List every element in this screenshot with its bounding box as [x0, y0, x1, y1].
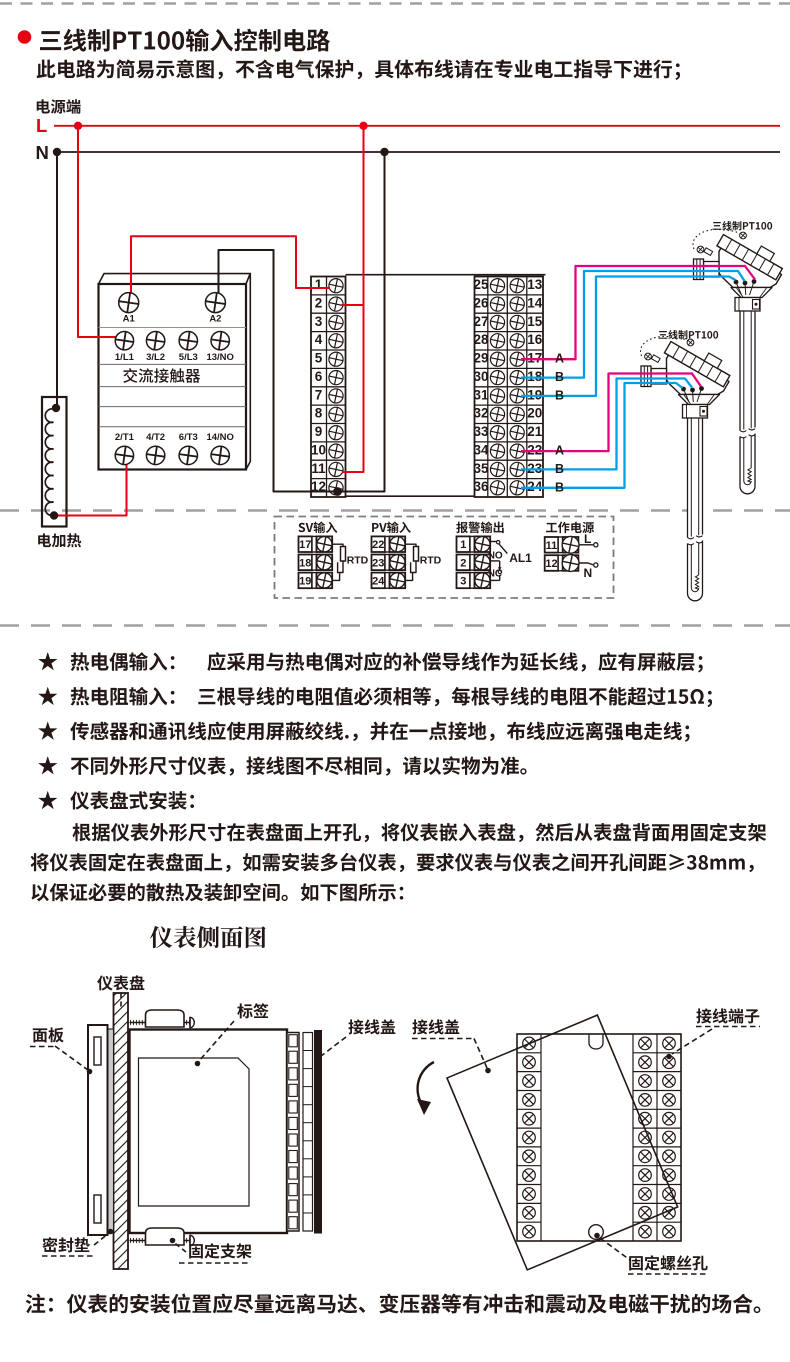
svg-text:14/NO: 14/NO	[206, 432, 233, 443]
svg-text:9: 9	[315, 424, 323, 439]
svg-text:14: 14	[527, 296, 543, 311]
svg-text:A2: A2	[209, 314, 221, 325]
svg-text:4: 4	[315, 332, 323, 347]
svg-text:B: B	[555, 462, 564, 476]
svg-text:32: 32	[473, 406, 488, 421]
svg-text:26: 26	[473, 296, 489, 311]
svg-text:11: 11	[311, 461, 326, 476]
svg-text:12: 12	[545, 558, 557, 570]
svg-text:N: N	[36, 142, 49, 163]
svg-text:21: 21	[527, 424, 543, 439]
svg-text:3/L2: 3/L2	[146, 352, 165, 363]
svg-text:3: 3	[315, 314, 323, 329]
svg-text:31: 31	[473, 387, 489, 402]
svg-text:A: A	[555, 352, 564, 366]
svg-text:8: 8	[315, 406, 323, 421]
svg-text:RTD: RTD	[420, 554, 442, 566]
svg-text:2/T1: 2/T1	[115, 432, 135, 443]
svg-text:6/T3: 6/T3	[179, 432, 198, 443]
svg-text:27: 27	[473, 314, 488, 329]
svg-text:L: L	[584, 532, 591, 546]
svg-text:29: 29	[473, 351, 488, 366]
svg-text:18: 18	[299, 557, 311, 569]
svg-text:2: 2	[460, 557, 466, 569]
svg-text:36: 36	[473, 479, 489, 494]
svg-text:15: 15	[527, 314, 543, 329]
svg-text:B: B	[555, 370, 564, 384]
svg-text:AL1: AL1	[509, 551, 532, 565]
svg-text:A: A	[555, 444, 564, 458]
svg-text:16: 16	[527, 332, 543, 347]
svg-text:5: 5	[315, 351, 323, 366]
svg-text:1: 1	[460, 539, 466, 551]
svg-text:11: 11	[546, 540, 558, 552]
svg-text:B: B	[555, 388, 564, 402]
svg-text:34: 34	[473, 443, 489, 458]
svg-text:19: 19	[299, 575, 311, 587]
svg-text:17: 17	[299, 539, 311, 551]
svg-text:5/L3: 5/L3	[179, 352, 198, 363]
svg-text:13/NO: 13/NO	[206, 352, 233, 363]
svg-text:1: 1	[315, 277, 323, 292]
svg-text:20: 20	[527, 406, 542, 421]
svg-text:22: 22	[372, 539, 384, 551]
svg-text:33: 33	[473, 424, 489, 439]
svg-text:6: 6	[315, 369, 323, 384]
svg-text:35: 35	[473, 461, 489, 476]
svg-text:28: 28	[473, 332, 489, 347]
svg-text:A1: A1	[123, 314, 136, 325]
svg-text:2: 2	[315, 296, 323, 311]
svg-text:24: 24	[372, 575, 385, 587]
svg-text:30: 30	[473, 369, 488, 384]
svg-text:25: 25	[473, 277, 489, 292]
svg-text:10: 10	[311, 443, 326, 458]
svg-text:L: L	[36, 115, 47, 136]
svg-text:N: N	[584, 566, 593, 580]
svg-text:B: B	[555, 480, 564, 494]
svg-text:13: 13	[527, 277, 543, 292]
svg-text:RTD: RTD	[347, 554, 369, 566]
svg-text:23: 23	[372, 557, 384, 569]
svg-text:7: 7	[315, 387, 323, 402]
svg-text:1/L1: 1/L1	[115, 352, 135, 363]
svg-text:4/T2: 4/T2	[146, 432, 165, 443]
svg-text:3: 3	[460, 575, 466, 587]
